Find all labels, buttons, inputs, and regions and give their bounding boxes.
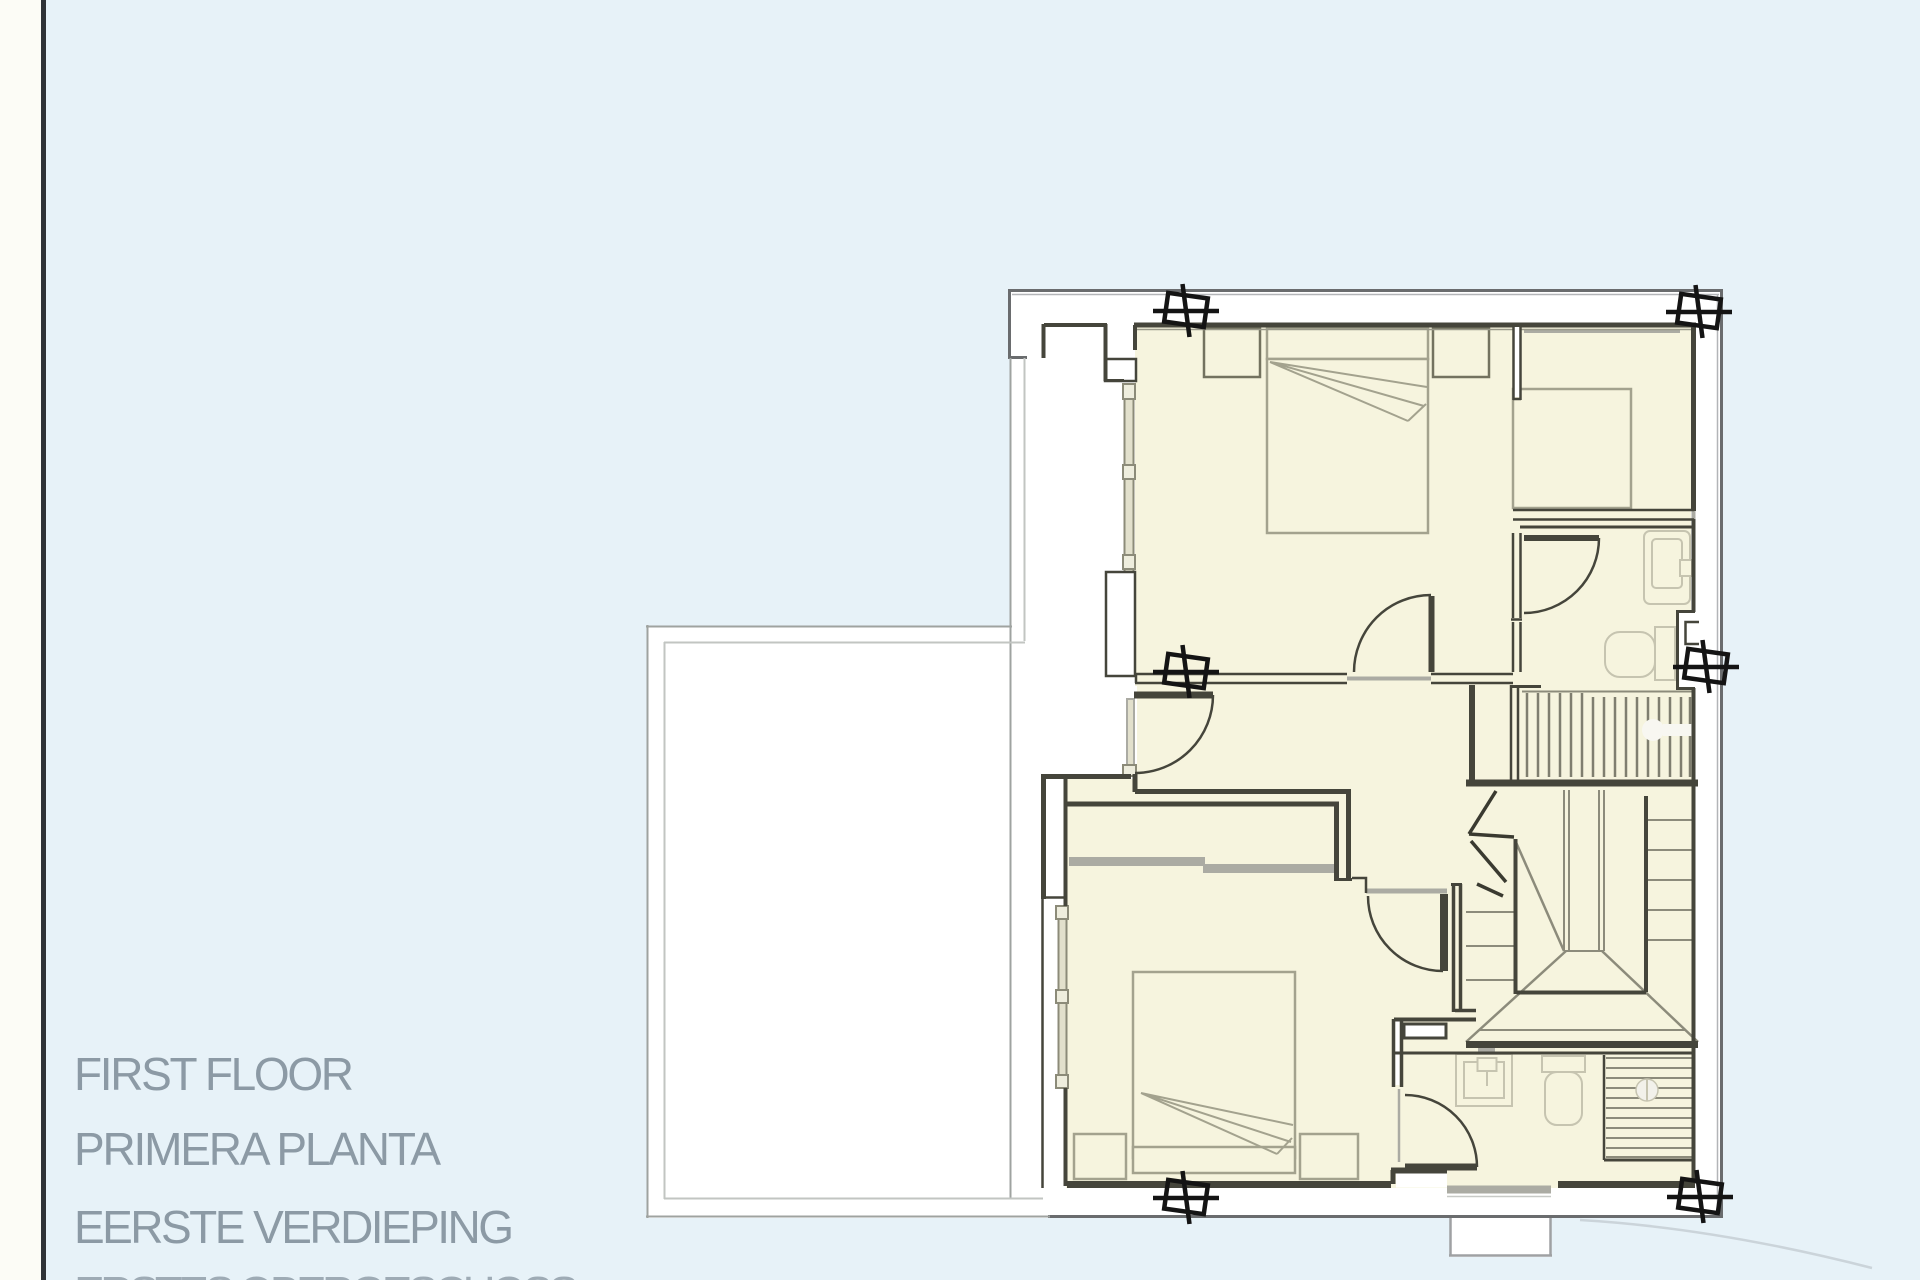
- svg-text:EERSTE VERDIEPING: EERSTE VERDIEPING: [74, 1201, 514, 1253]
- svg-text:PRIMERA PLANTA: PRIMERA PLANTA: [74, 1123, 441, 1175]
- svg-text:FIRST FLOOR: FIRST FLOOR: [74, 1048, 354, 1100]
- svg-text:ERSTES OBERGESCHOSS: ERSTES OBERGESCHOSS: [74, 1267, 579, 1280]
